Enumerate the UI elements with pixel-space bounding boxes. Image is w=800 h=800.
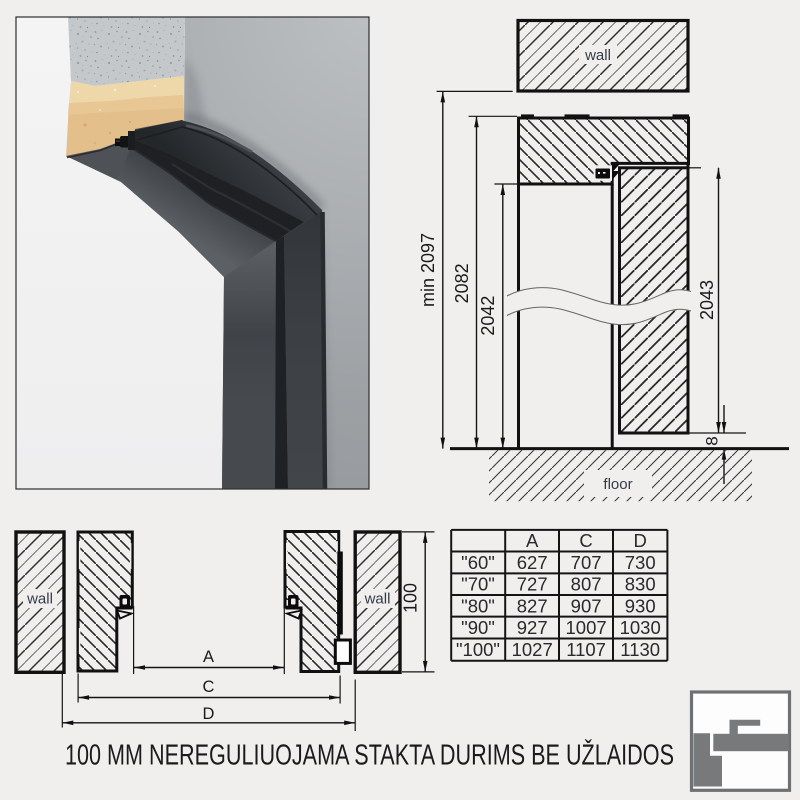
svg-text:floor: floor bbox=[603, 476, 632, 493]
svg-text:907: 907 bbox=[571, 595, 602, 616]
svg-text:730: 730 bbox=[625, 552, 656, 573]
svg-text:D: D bbox=[634, 530, 647, 551]
svg-text:"70": "70" bbox=[461, 574, 495, 595]
svg-text:1027: 1027 bbox=[512, 639, 553, 660]
svg-text:C: C bbox=[579, 530, 592, 551]
svg-text:2043: 2043 bbox=[697, 280, 717, 320]
svg-text:"100": "100" bbox=[456, 639, 500, 660]
svg-text:wall: wall bbox=[364, 591, 391, 608]
svg-text:1007: 1007 bbox=[566, 617, 607, 638]
svg-text:100 MM NEREGULIUOJAMA STAKTA D: 100 MM NEREGULIUOJAMA STAKTA DURIMS BE U… bbox=[65, 740, 674, 772]
svg-text:830: 830 bbox=[625, 574, 656, 595]
svg-text:930: 930 bbox=[625, 595, 656, 616]
svg-text:727: 727 bbox=[517, 574, 548, 595]
svg-text:2042: 2042 bbox=[478, 296, 498, 336]
svg-text:807: 807 bbox=[571, 574, 602, 595]
svg-text:927: 927 bbox=[517, 617, 548, 638]
svg-text:"90": "90" bbox=[461, 617, 495, 638]
svg-text:100: 100 bbox=[401, 583, 421, 613]
svg-text:707: 707 bbox=[571, 552, 602, 573]
svg-text:wall: wall bbox=[584, 47, 611, 64]
svg-text:1107: 1107 bbox=[566, 639, 606, 660]
svg-text:min 2097: min 2097 bbox=[418, 233, 438, 307]
svg-text:C: C bbox=[203, 678, 215, 696]
svg-text:"60": "60" bbox=[461, 552, 495, 573]
svg-text:1030: 1030 bbox=[620, 617, 661, 638]
svg-text:627: 627 bbox=[517, 552, 548, 573]
svg-text:827: 827 bbox=[517, 595, 548, 616]
svg-text:A: A bbox=[526, 530, 539, 551]
svg-text:D: D bbox=[203, 705, 215, 723]
svg-text:8: 8 bbox=[703, 436, 722, 445]
svg-text:1130: 1130 bbox=[620, 639, 660, 660]
svg-text:2082: 2082 bbox=[452, 263, 472, 303]
svg-text:A: A bbox=[203, 648, 214, 666]
svg-text:"80": "80" bbox=[461, 595, 495, 616]
svg-text:wall: wall bbox=[26, 591, 53, 608]
